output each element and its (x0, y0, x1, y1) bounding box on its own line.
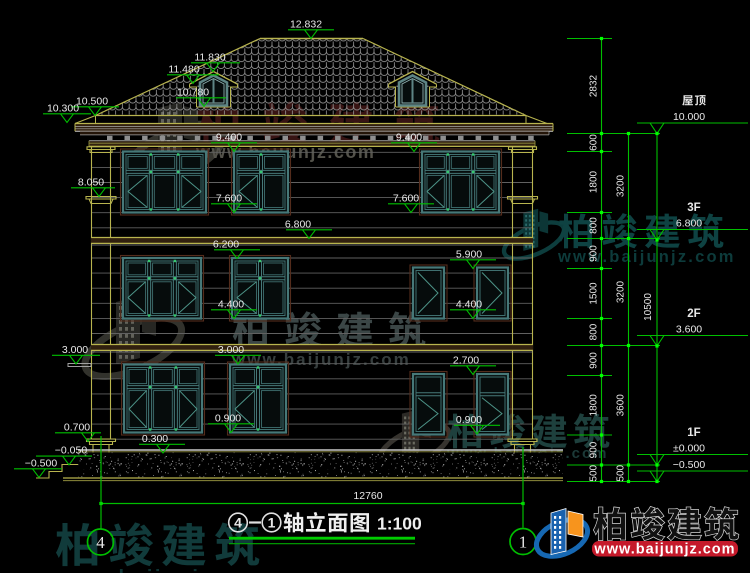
svg-text:9.400: 9.400 (216, 131, 242, 143)
svg-text:3.000: 3.000 (62, 344, 88, 356)
svg-text:3.600: 3.600 (676, 324, 702, 336)
svg-text:3200: 3200 (616, 280, 627, 303)
svg-text:3200: 3200 (616, 174, 627, 197)
svg-text:500: 500 (616, 464, 627, 481)
svg-text:1500: 1500 (589, 282, 600, 305)
svg-text:2832: 2832 (589, 74, 600, 97)
svg-text:600: 600 (589, 134, 600, 151)
svg-text:3.000: 3.000 (218, 344, 244, 356)
svg-text:4.400: 4.400 (218, 298, 244, 310)
svg-text:0.900: 0.900 (215, 412, 241, 424)
svg-text:6.200: 6.200 (213, 238, 239, 250)
svg-text:500: 500 (589, 464, 600, 481)
svg-text:4.400: 4.400 (456, 298, 482, 310)
svg-text:2.700: 2.700 (453, 354, 479, 366)
svg-text:900: 900 (589, 441, 600, 458)
svg-text:4: 4 (234, 515, 242, 531)
svg-text:3F: 3F (687, 202, 700, 214)
svg-text:0.900: 0.900 (456, 414, 482, 426)
svg-text:±0.000: ±0.000 (673, 443, 705, 455)
svg-text:6.800: 6.800 (676, 218, 702, 230)
svg-text:1: 1 (519, 533, 528, 552)
svg-text:7.600: 7.600 (216, 192, 242, 204)
svg-text:1800: 1800 (589, 394, 600, 417)
svg-text:−0.500: −0.500 (25, 457, 58, 469)
svg-text:8.050: 8.050 (78, 176, 104, 188)
svg-text:1F: 1F (687, 427, 700, 439)
svg-text:7.600: 7.600 (393, 192, 419, 204)
svg-text:0.700: 0.700 (64, 421, 90, 433)
svg-text:−0.500: −0.500 (673, 459, 706, 471)
svg-text:11.480: 11.480 (168, 63, 199, 75)
svg-text:1: 1 (268, 515, 276, 531)
svg-text:11.830: 11.830 (194, 51, 225, 63)
svg-text:3600: 3600 (616, 394, 627, 417)
svg-text:10.500: 10.500 (76, 95, 108, 107)
svg-text:800: 800 (589, 323, 600, 340)
svg-text:900: 900 (589, 245, 600, 262)
svg-text:12760: 12760 (353, 490, 382, 502)
svg-text:10.780: 10.780 (177, 86, 209, 98)
svg-text:10.000: 10.000 (673, 111, 705, 123)
svg-text:0.300: 0.300 (142, 433, 168, 445)
svg-text:−0.050: −0.050 (55, 445, 88, 457)
svg-text:10500: 10500 (643, 293, 654, 321)
svg-text:900: 900 (589, 352, 600, 369)
svg-text:10.300: 10.300 (47, 102, 79, 114)
svg-text:5.900: 5.900 (456, 248, 482, 260)
svg-text:6.800: 6.800 (285, 218, 311, 230)
svg-text:4: 4 (96, 533, 105, 552)
svg-text:www.baijunjz.com: www.baijunjz.com (593, 542, 735, 558)
svg-text:800: 800 (589, 217, 600, 234)
svg-text:www.baijunjz.com: www.baijunjz.com (56, 567, 270, 573)
svg-text:1800: 1800 (589, 170, 600, 193)
svg-text:9.400: 9.400 (396, 131, 422, 143)
svg-text:2F: 2F (687, 308, 700, 320)
svg-text:1:100: 1:100 (377, 514, 422, 534)
svg-text:12.832: 12.832 (290, 18, 322, 30)
svg-text:www.baijunjz.com: www.baijunjz.com (557, 248, 736, 266)
